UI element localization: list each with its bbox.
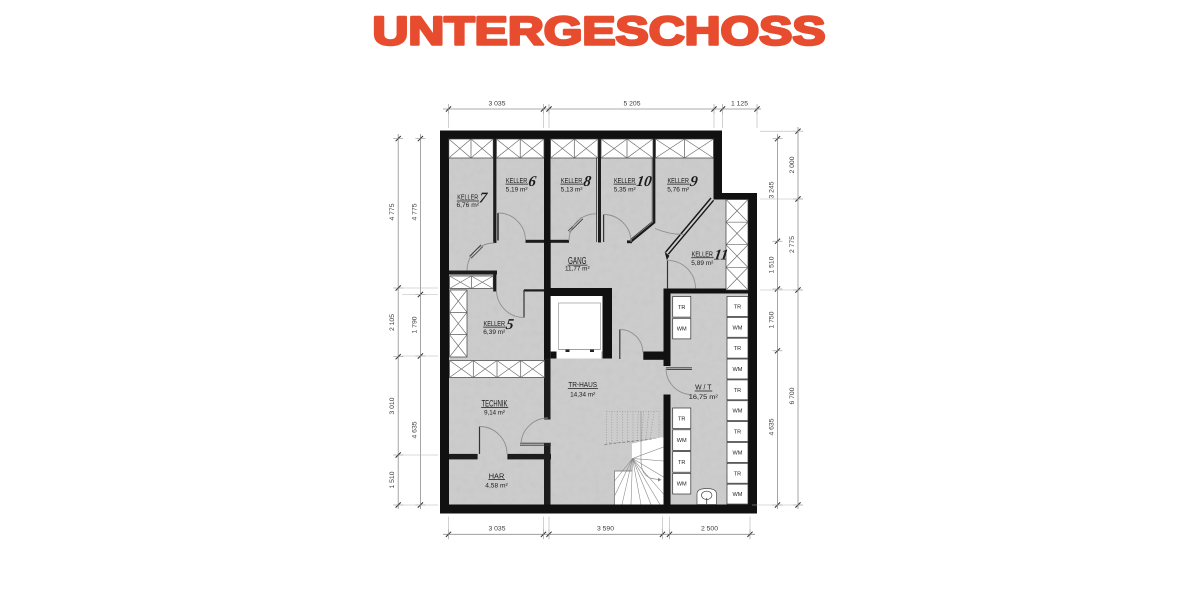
svg-text:WM: WM [733,325,743,331]
svg-text:TR: TR [734,471,741,477]
svg-text:WM: WM [677,327,687,333]
svg-text:11: 11 [713,248,729,264]
svg-text:WM: WM [733,492,743,498]
svg-text:1 790: 1 790 [411,316,418,333]
svg-text:4,58 m²: 4,58 m² [485,483,508,490]
svg-text:TR: TR [734,430,741,436]
svg-text:1 750: 1 750 [769,311,776,328]
svg-text:3 590: 3 590 [597,526,614,533]
svg-text:TR-HAUS: TR-HAUS [568,380,597,389]
svg-text:4 635: 4 635 [411,421,418,438]
svg-text:WM: WM [733,409,743,415]
svg-text:UNTERGESCHOSS: UNTERGESCHOSS [373,10,826,54]
svg-text:5,89 m²: 5,89 m² [691,260,714,267]
svg-text:3 035: 3 035 [488,526,505,533]
svg-text:4 775: 4 775 [389,203,396,220]
svg-text:5 205: 5 205 [623,101,640,108]
svg-text:1 125: 1 125 [731,101,748,108]
svg-text:9,14 m²: 9,14 m² [484,409,506,416]
svg-text:6,39 m²: 6,39 m² [483,329,506,336]
svg-text:KELLER: KELLER [667,176,689,185]
svg-text:2 500: 2 500 [701,526,718,533]
svg-text:11,77 m²: 11,77 m² [565,266,590,273]
svg-text:WM: WM [733,367,743,373]
svg-text:TR: TR [678,460,685,466]
svg-text:KELLER: KELLER [614,176,636,185]
svg-text:2 000: 2 000 [789,156,796,173]
svg-text:KELLER: KELLER [506,176,527,185]
svg-text:KELLER: KELLER [484,319,506,328]
svg-text:TR: TR [678,416,685,422]
svg-text:6,76 m²: 6,76 m² [456,202,479,209]
svg-text:5,19 m²: 5,19 m² [506,186,529,193]
svg-text:3 010: 3 010 [389,397,396,414]
svg-text:TR: TR [734,346,741,352]
svg-text:10: 10 [635,174,653,190]
svg-text:WM: WM [677,438,687,444]
svg-text:5,13 m²: 5,13 m² [561,186,584,193]
svg-text:4 635: 4 635 [769,418,776,435]
svg-text:1 510: 1 510 [769,256,776,273]
svg-text:5,35 m²: 5,35 m² [614,186,637,193]
svg-text:KELLER: KELLER [561,176,583,185]
svg-text:2 775: 2 775 [789,236,796,253]
svg-text:KELLER: KELLER [692,250,713,259]
svg-text:W / T: W / T [695,383,712,392]
svg-text:1 510: 1 510 [389,471,396,488]
svg-text:TECHNIK: TECHNIK [482,398,508,408]
svg-text:6 700: 6 700 [789,387,796,404]
svg-text:14,34 m²: 14,34 m² [570,391,596,398]
svg-text:TR: TR [734,388,741,394]
svg-text:2 105: 2 105 [389,314,396,331]
svg-text:3 035: 3 035 [488,101,505,108]
svg-text:4 775: 4 775 [411,203,418,220]
svg-text:TR: TR [734,304,741,310]
svg-text:HAR: HAR [489,471,505,480]
svg-text:WM: WM [733,450,743,456]
svg-text:WM: WM [677,482,687,488]
svg-text:16,75 m²: 16,75 m² [689,394,719,401]
svg-text:5,76 m²: 5,76 m² [667,186,690,193]
svg-text:KELLER: KELLER [457,193,478,202]
svg-text:TR: TR [678,305,685,311]
svg-text:3 245: 3 245 [769,181,776,198]
